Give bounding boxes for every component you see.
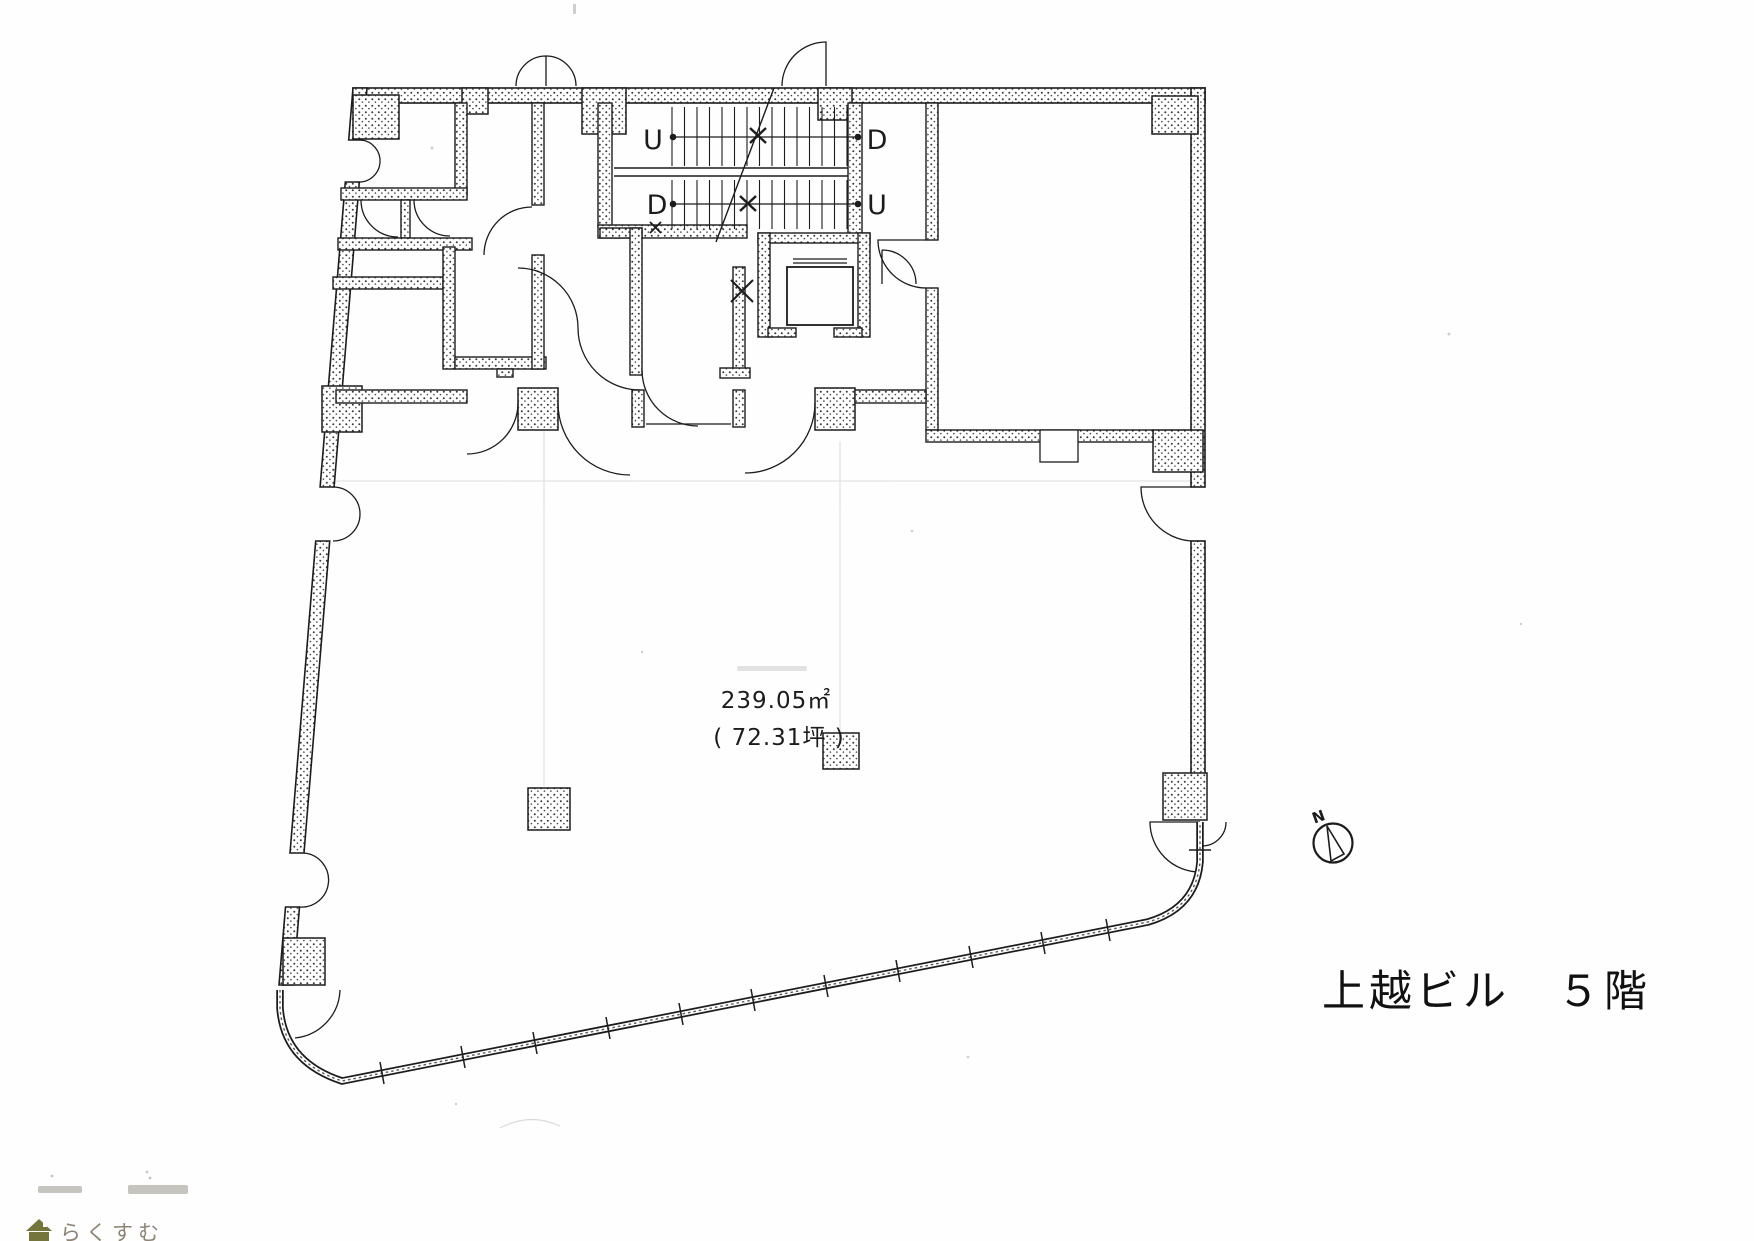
elevator-door-lines [793, 259, 847, 263]
pillar-band-2 [815, 388, 855, 430]
scan-smudge-arc [500, 1119, 560, 1128]
elevator-shaft-top [758, 233, 870, 243]
brand-logo: らくすむ [26, 1219, 164, 1241]
scan-smudge-1 [737, 666, 807, 671]
duct-box [1040, 430, 1078, 462]
wall-band-2 [855, 390, 926, 403]
elevator-shaft-foot-r [834, 328, 862, 337]
pillar-room-2 [528, 788, 570, 830]
building-outline [279, 88, 1205, 985]
wall-vF-lower [532, 255, 544, 369]
door-top-out-2 [546, 56, 576, 86]
fine-print-smudge [38, 1175, 188, 1194]
stair-landing [614, 168, 848, 176]
wall-left-seg2 [320, 182, 359, 487]
door-right-low [1150, 822, 1200, 872]
door-wc-2 [414, 200, 450, 236]
floor-plan-drawing: U D D U [0, 0, 1754, 1241]
pillar-band-1 [518, 388, 558, 430]
door-left-top [357, 140, 380, 182]
door-room-right [878, 240, 926, 288]
door-left-mid [333, 487, 360, 541]
door-wc-1 [361, 200, 398, 237]
door-right-low-out [1202, 822, 1226, 846]
door-top-out-3 [782, 42, 826, 86]
compass: N [1310, 806, 1353, 862]
compass-needle [1327, 826, 1344, 861]
arrow-dot [670, 201, 676, 207]
stair-label-u1: U [643, 125, 663, 156]
wall-room-left-b [926, 288, 938, 430]
area-label-m2: 239.05㎡ [721, 688, 831, 714]
door-vestibule [642, 370, 698, 426]
pillar-top-left [353, 95, 399, 139]
door-band-1 [467, 403, 518, 454]
wall-left-seg3 [290, 541, 330, 853]
elevator [731, 233, 870, 337]
pillar-right-1 [1153, 430, 1203, 472]
wall-stair-right [848, 103, 862, 235]
elevator-shaft-foot-l [768, 328, 796, 337]
wall-right-lower [1191, 541, 1205, 790]
pillar-right-2 [1163, 773, 1207, 820]
plan-title: 上越ビル ５階 [1322, 967, 1651, 1017]
wall-hA [341, 188, 467, 200]
vestibule-right [733, 390, 745, 427]
railing-stipple-line [280, 822, 1200, 1081]
brand-text: らくすむ [60, 1221, 164, 1241]
arrow-dot [855, 201, 861, 207]
elevator-car [787, 267, 853, 325]
wall-band-1 [336, 390, 467, 403]
arrow-dot [670, 134, 676, 140]
pillar-left-low [283, 938, 325, 985]
wall-hC [333, 277, 443, 289]
railing-inner-white [280, 822, 1200, 1081]
vestibule-left [632, 390, 644, 427]
door-ev-side [882, 250, 916, 284]
elevator-shaft-right [858, 233, 870, 337]
house-icon [26, 1219, 52, 1241]
railing-outer [280, 822, 1200, 1081]
wall-stub-2 [720, 368, 750, 378]
stair-label-d2: D [647, 190, 668, 221]
wall-divider [401, 200, 410, 238]
door-vf [484, 207, 532, 255]
door-hall-1 [518, 268, 578, 328]
door-left-low [299, 853, 329, 907]
arrow-dot [855, 134, 861, 140]
balcony-railing [280, 822, 1211, 1084]
pillar-top-right [1152, 96, 1198, 134]
scan-artifacts [146, 4, 1523, 1174]
wall-stair-left [598, 103, 612, 227]
wall-vD [443, 247, 455, 369]
door-band-3 [745, 403, 815, 473]
stair-break-line [716, 88, 774, 242]
door-left-corner [295, 990, 340, 1038]
scanned-floor-plan-page: U D D U [0, 0, 1754, 1241]
interior-walls [333, 103, 1153, 442]
elevator-shaft-left [758, 233, 770, 337]
wall-room-left-a [926, 103, 938, 240]
wall-v-hall [630, 228, 642, 375]
wall-v1 [455, 103, 467, 195]
area-label-tsubo: ( 72.31坪 ) [713, 725, 844, 751]
stair-label-u2: U [867, 190, 887, 221]
stair-label-d1: D [867, 125, 888, 156]
wall-right-upper [1191, 88, 1205, 487]
door-top-out-1 [516, 56, 546, 86]
door-right-mid [1141, 487, 1191, 541]
wall-tab [497, 369, 513, 377]
door-band-2 [558, 403, 630, 475]
wall-vF-upper [532, 103, 544, 205]
